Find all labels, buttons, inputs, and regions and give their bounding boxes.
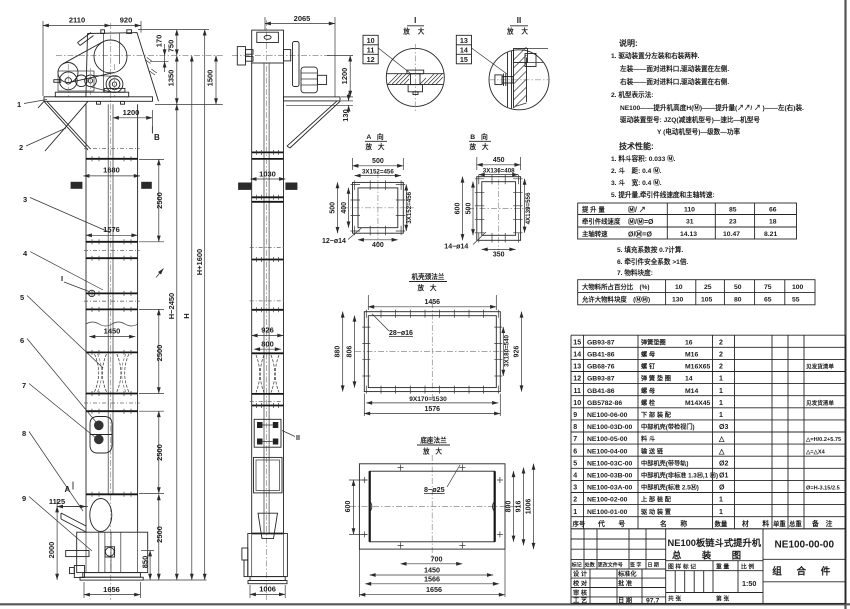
svg-text:Ⓜ/Ⓜ=Ø: Ⓜ/Ⓜ=Ø bbox=[628, 217, 654, 226]
svg-text:允许大物料块度 (ⓂⓂ): 允许大物料块度 (ⓂⓂ) bbox=[581, 295, 650, 304]
svg-text:750: 750 bbox=[167, 40, 176, 53]
svg-text:8−ø25: 8−ø25 bbox=[424, 485, 445, 494]
svg-text:1200: 1200 bbox=[340, 68, 349, 85]
svg-text:中部机壳(标准 2.5Ⓜ): 中部机壳(标准 2.5Ⓜ) bbox=[641, 484, 699, 492]
svg-text:5: 5 bbox=[20, 293, 24, 302]
svg-text:2: 2 bbox=[719, 339, 723, 346]
svg-text:主轴转速: 主轴转速 bbox=[582, 229, 608, 238]
svg-text:NE100-04-00: NE100-04-00 bbox=[587, 448, 628, 455]
svg-text:1125: 1125 bbox=[49, 497, 65, 506]
svg-text:3X152=456: 3X152=456 bbox=[406, 191, 413, 223]
svg-text:NE100-00-00: NE100-00-00 bbox=[775, 540, 835, 551]
svg-text:1450: 1450 bbox=[104, 326, 121, 335]
svg-text:提 升 量: 提 升 量 bbox=[581, 205, 605, 214]
svg-text:14: 14 bbox=[460, 46, 468, 55]
svg-text:NE100-03D-00: NE100-03D-00 bbox=[587, 424, 633, 431]
svg-text:放 大: 放 大 bbox=[416, 283, 438, 292]
svg-text:料 斗: 料 斗 bbox=[641, 435, 655, 443]
svg-text:500: 500 bbox=[330, 202, 337, 214]
svg-text:输 送 链: 输 送 链 bbox=[641, 447, 664, 455]
svg-text:驱动装置型号: JZQ(减速机型号)—速比—机型号: 驱动装置型号: JZQ(减速机型号)—速比—机型号 bbox=[620, 115, 760, 124]
svg-text:110: 110 bbox=[684, 207, 695, 214]
svg-text:螺 栓: 螺 栓 bbox=[641, 399, 656, 407]
svg-text:80: 80 bbox=[734, 297, 742, 304]
svg-text:△: △ bbox=[718, 436, 725, 443]
svg-text:926: 926 bbox=[261, 325, 274, 334]
svg-text:11: 11 bbox=[573, 388, 581, 395]
svg-text:10: 10 bbox=[367, 36, 375, 45]
svg-text:14: 14 bbox=[685, 376, 693, 383]
svg-text:2500: 2500 bbox=[155, 444, 164, 461]
svg-text:880: 880 bbox=[335, 346, 342, 358]
svg-text:450: 450 bbox=[493, 157, 505, 164]
svg-text:驱 动 装 置: 驱 动 装 置 bbox=[641, 508, 671, 516]
svg-text:1500: 1500 bbox=[206, 70, 215, 87]
svg-text:75: 75 bbox=[764, 284, 772, 291]
svg-text:左装——面对进料口,驱动装置在左侧.: 左装——面对进料口,驱动装置在左侧. bbox=[619, 64, 729, 73]
svg-text:920: 920 bbox=[120, 16, 133, 25]
svg-text:3: 3 bbox=[23, 195, 27, 204]
svg-text:170: 170 bbox=[155, 35, 164, 48]
svg-text:10: 10 bbox=[573, 400, 581, 407]
svg-text:8: 8 bbox=[22, 429, 26, 438]
svg-text:放 大: 放 大 bbox=[402, 27, 427, 36]
svg-text:11: 11 bbox=[367, 46, 375, 55]
svg-text:Ø2: Ø2 bbox=[719, 460, 728, 467]
svg-text:2000: 2000 bbox=[47, 542, 56, 559]
svg-text:Ø: Ø bbox=[719, 485, 725, 492]
svg-text:3X136=408: 3X136=408 bbox=[483, 167, 515, 174]
svg-text:NE100-03B-00: NE100-03B-00 bbox=[587, 473, 633, 480]
svg-text:签 字: 签 字 bbox=[629, 562, 641, 569]
svg-text:A: A bbox=[65, 485, 71, 494]
svg-text:机壳颈法兰: 机壳颈法兰 bbox=[412, 272, 445, 281]
svg-text:1450: 1450 bbox=[424, 566, 440, 575]
svg-text:28−ø16: 28−ø16 bbox=[389, 330, 413, 337]
svg-text:2500: 2500 bbox=[155, 192, 164, 209]
svg-text:1006: 1006 bbox=[259, 585, 276, 594]
svg-text:△: △ bbox=[718, 448, 725, 455]
svg-text:总重: 总重 bbox=[789, 519, 802, 528]
svg-text:I: I bbox=[61, 274, 63, 283]
svg-text:GB93-87: GB93-87 bbox=[587, 339, 615, 346]
svg-text:1: 1 bbox=[719, 497, 723, 504]
svg-text:比 例: 比 例 bbox=[741, 562, 754, 570]
svg-text:1: 1 bbox=[17, 100, 21, 109]
svg-text:916: 916 bbox=[515, 501, 522, 513]
svg-text:名 称: 名 称 bbox=[660, 519, 687, 528]
svg-text:NE100-01-00: NE100-01-00 bbox=[587, 509, 628, 516]
svg-text:700: 700 bbox=[431, 554, 443, 563]
svg-text:说明:: 说明: bbox=[619, 38, 638, 48]
svg-text:NE100-02-00: NE100-02-00 bbox=[587, 497, 628, 504]
svg-text:审 核: 审 核 bbox=[573, 589, 588, 597]
svg-text:4: 4 bbox=[573, 473, 577, 480]
svg-text:5. 提升量,牵引件线速度和主轴转速:: 5. 提升量,牵引件线速度和主轴转速: bbox=[611, 190, 715, 199]
svg-text:2110: 2110 bbox=[69, 16, 85, 25]
svg-text:2. 机型表示法:: 2. 机型表示法: bbox=[611, 90, 654, 99]
svg-text:图 样 标 记: 图 样 标 记 bbox=[668, 562, 696, 570]
svg-text:13: 13 bbox=[460, 36, 468, 45]
svg-text:130: 130 bbox=[341, 109, 350, 122]
svg-text:1566: 1566 bbox=[424, 574, 440, 583]
svg-text:见发货清单: 见发货清单 bbox=[806, 399, 834, 407]
svg-text:H: H bbox=[182, 313, 191, 318]
svg-text:926: 926 bbox=[514, 346, 521, 358]
svg-text:4X139=556: 4X139=556 bbox=[525, 192, 532, 224]
svg-text:放 大: 放 大 bbox=[468, 142, 490, 151]
svg-text:NE100板链斗式提升机: NE100板链斗式提升机 bbox=[668, 537, 762, 548]
svg-text:材 料: 材 料 bbox=[742, 519, 769, 528]
svg-text:1030: 1030 bbox=[259, 169, 276, 178]
svg-text:8: 8 bbox=[573, 424, 577, 431]
svg-text:校 对: 校 对 bbox=[573, 579, 588, 587]
svg-text:批 准: 批 准 bbox=[618, 579, 633, 587]
svg-text:序号: 序号 bbox=[573, 519, 586, 528]
svg-text:1: 1 bbox=[719, 400, 723, 407]
svg-text:3. 斗 宽: 0.4 Ⓜ.: 3. 斗 宽: 0.4 Ⓜ. bbox=[611, 178, 662, 187]
svg-text:备 注: 备 注 bbox=[811, 519, 833, 528]
svg-text:100: 100 bbox=[792, 284, 804, 291]
svg-text:1576: 1576 bbox=[103, 225, 120, 234]
svg-text:B 向: B 向 bbox=[470, 132, 490, 141]
svg-text:10: 10 bbox=[675, 284, 683, 291]
svg-text:13: 13 bbox=[573, 364, 581, 371]
svg-text:1656: 1656 bbox=[103, 585, 120, 594]
svg-text:15: 15 bbox=[460, 55, 468, 64]
svg-text:2: 2 bbox=[19, 143, 23, 152]
svg-text:2: 2 bbox=[719, 364, 723, 371]
svg-text:65: 65 bbox=[764, 297, 772, 304]
svg-text:7. 物料块度:: 7. 物料块度: bbox=[617, 268, 653, 277]
svg-text:NE100——提升机高度H(Ⓜ)——提升量(↗↗/ ↗: NE100——提升机高度H(Ⓜ)——提升量(↗↗/ ↗ )——左(右)装. bbox=[620, 103, 804, 112]
svg-text:14: 14 bbox=[573, 352, 581, 359]
svg-text:8.21: 8.21 bbox=[764, 231, 777, 238]
svg-text:△=H/0.2+5.75: △=H/0.2+5.75 bbox=[805, 436, 841, 443]
svg-text:850: 850 bbox=[140, 556, 149, 569]
svg-text:放 大: 放 大 bbox=[364, 142, 386, 151]
svg-text:1350: 1350 bbox=[167, 70, 176, 87]
svg-text:M14X45: M14X45 bbox=[685, 400, 711, 407]
svg-text:3X180=540: 3X180=540 bbox=[504, 334, 511, 366]
svg-text:12: 12 bbox=[573, 376, 581, 383]
svg-text:△=△X4: △=△X4 bbox=[805, 448, 826, 455]
svg-text:螺 母: 螺 母 bbox=[641, 387, 655, 395]
svg-text:NE100-06-00: NE100-06-00 bbox=[587, 412, 628, 419]
svg-text:Ø3: Ø3 bbox=[719, 424, 728, 431]
svg-text:1200: 1200 bbox=[123, 108, 140, 117]
svg-text:下 部 装 配: 下 部 装 配 bbox=[641, 411, 672, 419]
svg-text:螺 母: 螺 母 bbox=[641, 351, 655, 359]
svg-text:Ⓜ/ ↗: Ⓜ/ ↗ bbox=[628, 205, 646, 214]
svg-text:9X170=1530: 9X170=1530 bbox=[409, 396, 447, 403]
svg-text:10.47: 10.47 bbox=[723, 231, 740, 238]
svg-text:5: 5 bbox=[573, 460, 577, 467]
svg-text:2500: 2500 bbox=[155, 526, 164, 543]
svg-text:上 部 装 配: 上 部 装 配 bbox=[641, 496, 672, 504]
svg-text:H−2450: H−2450 bbox=[167, 293, 176, 319]
svg-text:工 艺: 工 艺 bbox=[573, 597, 587, 605]
svg-text:弹簧垫圈: 弹簧垫圈 bbox=[641, 338, 666, 346]
svg-text:800: 800 bbox=[261, 339, 274, 348]
svg-text:Ø=H-3.15/2.5: Ø=H-3.15/2.5 bbox=[806, 486, 840, 492]
svg-text:GB41-86: GB41-86 bbox=[587, 388, 615, 395]
svg-text:6. 牵引件安全系数 >1倍.: 6. 牵引件安全系数 >1倍. bbox=[617, 257, 688, 266]
svg-text:底座法兰: 底座法兰 bbox=[420, 436, 447, 445]
svg-text:350: 350 bbox=[493, 252, 505, 259]
svg-text:7: 7 bbox=[573, 436, 577, 443]
svg-text:大物料所占百分比 (%): 大物料所占百分比 (%) bbox=[582, 282, 649, 291]
svg-text:2065: 2065 bbox=[294, 14, 311, 23]
svg-text:25: 25 bbox=[704, 284, 712, 291]
svg-text:螺 钉: 螺 钉 bbox=[641, 363, 656, 371]
svg-text:M14: M14 bbox=[685, 388, 698, 395]
svg-text:400: 400 bbox=[341, 202, 348, 214]
svg-text:55: 55 bbox=[792, 297, 800, 304]
svg-text:Ø/Ⓜ=Ø: Ø/Ⓜ=Ø bbox=[628, 230, 652, 239]
svg-text:66: 66 bbox=[769, 207, 777, 214]
svg-text:更改文件号: 更改文件号 bbox=[598, 562, 623, 569]
svg-text:右装——面对进料口,驱动装置在右侧.: 右装——面对进料口,驱动装置在右侧. bbox=[620, 77, 729, 86]
svg-text:23: 23 bbox=[729, 219, 737, 226]
svg-text:标记: 标记 bbox=[571, 562, 582, 569]
svg-text:15: 15 bbox=[573, 339, 581, 346]
svg-text:1: 1 bbox=[719, 376, 723, 383]
svg-text:A 向: A 向 bbox=[366, 132, 385, 141]
svg-text:400: 400 bbox=[372, 242, 384, 249]
svg-text:GB93-87: GB93-87 bbox=[587, 376, 615, 383]
svg-text:处数: 处数 bbox=[584, 562, 596, 569]
svg-text:组 合 件: 组 合 件 bbox=[772, 566, 836, 578]
svg-text:105: 105 bbox=[701, 297, 713, 304]
svg-text:1: 1 bbox=[573, 509, 577, 516]
svg-text:GB41-86: GB41-86 bbox=[587, 352, 615, 359]
svg-text:1576: 1576 bbox=[425, 406, 441, 413]
svg-text:2500: 2500 bbox=[155, 345, 164, 362]
svg-text:中部机壳(带检视门): 中部机壳(带检视门) bbox=[641, 423, 695, 431]
svg-text:弹 簧 垫 圈: 弹 簧 垫 圈 bbox=[641, 375, 671, 383]
svg-text:18: 18 bbox=[769, 219, 777, 226]
svg-text:806: 806 bbox=[347, 346, 354, 358]
svg-text:1:50: 1:50 bbox=[742, 579, 756, 588]
svg-text:31: 31 bbox=[686, 219, 694, 226]
svg-text:B: B bbox=[154, 133, 160, 142]
svg-text:第 张: 第 张 bbox=[716, 595, 729, 603]
svg-text:见发货清单: 见发货清单 bbox=[806, 363, 834, 371]
svg-text:1: 1 bbox=[719, 412, 723, 419]
svg-text:500: 500 bbox=[465, 203, 472, 215]
svg-text:日 期: 日 期 bbox=[648, 562, 659, 569]
svg-text:GB68-76: GB68-76 bbox=[587, 364, 615, 371]
svg-text:Y (电动机型号)—级数—功率: Y (电动机型号)—级数—功率 bbox=[657, 127, 740, 136]
svg-text:放 大: 放 大 bbox=[506, 27, 531, 36]
svg-text:重 量: 重 量 bbox=[716, 562, 729, 570]
svg-text:5. 填充系数按 0.7计算.: 5. 填充系数按 0.7计算. bbox=[617, 245, 683, 254]
svg-text:1456: 1456 bbox=[425, 299, 441, 306]
svg-text:放 大: 放 大 bbox=[422, 447, 444, 456]
svg-text:16: 16 bbox=[685, 339, 693, 346]
svg-text:NE100-03A-00: NE100-03A-00 bbox=[587, 485, 633, 492]
svg-text:1680: 1680 bbox=[103, 166, 120, 175]
svg-text:500: 500 bbox=[372, 158, 384, 165]
svg-text:数量: 数量 bbox=[715, 519, 728, 528]
svg-text:中部机壳(带导轨): 中部机壳(带导轨) bbox=[641, 459, 688, 467]
svg-text:技术性能:: 技术性能: bbox=[619, 141, 654, 151]
svg-text:II: II bbox=[517, 16, 521, 25]
svg-text:1: 1 bbox=[719, 388, 723, 395]
svg-text:中部机壳(非标准 1.3Ⓜ,1 Ⓜ): 中部机壳(非标准 1.3Ⓜ,1 Ⓜ) bbox=[641, 472, 718, 480]
svg-text:2: 2 bbox=[573, 497, 577, 504]
svg-text:3: 3 bbox=[573, 485, 577, 492]
svg-text:代 号: 代 号 bbox=[597, 519, 625, 528]
svg-text:设 计: 设 计 bbox=[573, 570, 588, 578]
svg-text:I: I bbox=[414, 16, 416, 25]
svg-text:NE100-05-00: NE100-05-00 bbox=[587, 436, 628, 443]
svg-text:日 期: 日 期 bbox=[618, 597, 632, 605]
svg-text:标准化: 标准化 bbox=[617, 570, 637, 578]
svg-text:M16X65: M16X65 bbox=[685, 364, 711, 371]
svg-text:2: 2 bbox=[719, 352, 723, 359]
svg-text:1656: 1656 bbox=[426, 585, 442, 594]
svg-text:85: 85 bbox=[729, 207, 737, 214]
svg-text:Ø1: Ø1 bbox=[719, 473, 728, 480]
svg-text:800: 800 bbox=[505, 501, 512, 513]
svg-text:总 装 图: 总 装 图 bbox=[672, 550, 750, 561]
svg-text:M16: M16 bbox=[685, 352, 698, 359]
svg-text:NE100-03C-00: NE100-03C-00 bbox=[587, 460, 633, 467]
svg-text:600: 600 bbox=[455, 203, 462, 215]
svg-text:1: 1 bbox=[719, 509, 723, 516]
svg-text:9: 9 bbox=[573, 412, 577, 419]
svg-text:14.13: 14.13 bbox=[680, 231, 697, 238]
svg-text:3X152=456: 3X152=456 bbox=[362, 168, 394, 175]
svg-text:12−ø14: 12−ø14 bbox=[322, 238, 346, 245]
svg-text:共 张: 共 张 bbox=[668, 595, 681, 603]
svg-text:1006: 1006 bbox=[525, 499, 532, 515]
svg-text:1. 驱动装置分左装和右装两种.: 1. 驱动装置分左装和右装两种. bbox=[611, 51, 699, 60]
svg-text:单重: 单重 bbox=[773, 519, 786, 528]
svg-text:2. 斗 距: 0.4 Ⓜ.: 2. 斗 距: 0.4 Ⓜ. bbox=[611, 166, 662, 175]
svg-text:97.7: 97.7 bbox=[646, 598, 659, 605]
svg-text:600: 600 bbox=[345, 501, 352, 513]
svg-text:II: II bbox=[296, 435, 300, 442]
svg-text:14−ø14: 14−ø14 bbox=[444, 244, 468, 251]
svg-text:牵引件线速度: 牵引件线速度 bbox=[582, 217, 621, 226]
svg-text:6: 6 bbox=[20, 336, 24, 345]
svg-text:130: 130 bbox=[672, 297, 684, 304]
svg-text:50: 50 bbox=[734, 284, 742, 291]
svg-text:1. 料斗容积: 0.033 Ⓜ.: 1. 料斗容积: 0.033 Ⓜ. bbox=[611, 154, 676, 163]
svg-text:GB5782-86: GB5782-86 bbox=[587, 400, 622, 407]
svg-text:7: 7 bbox=[22, 381, 26, 390]
svg-text:9: 9 bbox=[22, 494, 26, 503]
svg-text:H+1600: H+1600 bbox=[195, 249, 204, 275]
svg-text:12: 12 bbox=[367, 55, 375, 64]
svg-text:6: 6 bbox=[573, 448, 577, 455]
